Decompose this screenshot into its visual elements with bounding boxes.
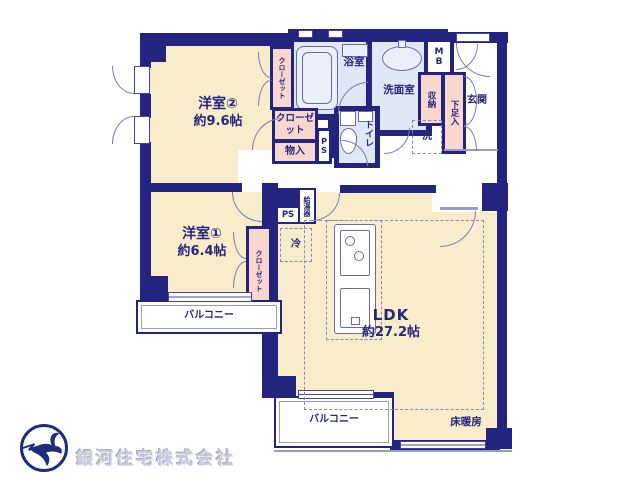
meter-box-label: MB: [434, 47, 444, 67]
room-ldk-name: LDK: [338, 306, 444, 325]
room-ldk-label: LDK 約27.2帖: [338, 306, 444, 341]
ldk-door-leaf: [440, 207, 478, 210]
pipe-space-hall: PS: [316, 128, 332, 164]
company-logo: [20, 424, 68, 472]
pipe-space-ldk: PS: [276, 206, 300, 224]
pipe-space-hall-label: PS: [320, 137, 329, 155]
water-heater-label: 給湯器: [302, 196, 312, 217]
bird-logo-icon: [21, 425, 67, 471]
room-ldk-size: 約27.2帖: [338, 325, 444, 341]
room-western2-label: 洋室② 約9.6帖: [158, 96, 278, 130]
wash-basin-tap-icon: [398, 40, 406, 48]
room-western2-name: 洋室②: [158, 96, 278, 114]
bathroom-label: 浴室: [338, 56, 370, 69]
window-western2-lower: [134, 116, 150, 144]
toilet-tank-icon: [340, 111, 356, 126]
stove-burner-1: [345, 236, 355, 246]
closet-western2-label: クローゼット: [277, 57, 287, 99]
floor-heating-label: 床暖房: [444, 416, 488, 429]
shoe-cabinet-label: 下足入: [448, 100, 460, 126]
wall-between-western-rooms: [143, 183, 242, 192]
room-western1-label: 洋室① 約6.4帖: [150, 226, 254, 260]
stove-burner-2: [354, 251, 364, 261]
window-bath-vent-1: [298, 30, 313, 38]
window-western2-upper-swing-arc: [112, 66, 134, 94]
wash-basin-icon: [382, 46, 422, 71]
wall-left-1: [140, 44, 151, 68]
room-western1-size: 約6.4帖: [150, 244, 254, 260]
closet-western1-label: クローゼット: [254, 250, 264, 292]
ground-line: [274, 450, 512, 452]
wall-right: [497, 43, 507, 433]
fridge-label: 冷: [291, 239, 301, 252]
room-western1-name: 洋室①: [150, 226, 254, 244]
window-bath-vent-2: [328, 30, 343, 38]
company-name: 銀河住宅株式会社: [76, 444, 236, 469]
washer-space: 洗: [412, 120, 442, 154]
bathtub-inner-icon: [302, 52, 332, 104]
meter-box: MB: [424, 38, 454, 76]
window-western2-lower-swing-arc: [112, 116, 134, 144]
water-heater-wall-block: [276, 188, 300, 208]
window-western2-upper: [134, 66, 150, 94]
window-western1-balcony: [168, 292, 252, 302]
balcony-west-label: バルコニー: [156, 310, 262, 323]
shoe-cabinet-box: 下足入: [442, 72, 466, 154]
window-ldk-south: [400, 441, 486, 449]
cabinet-label: 収納: [425, 91, 437, 108]
cabinet-box: 収納: [418, 72, 444, 126]
toilet-label: トイレ: [362, 120, 375, 147]
wall-step-ldk: [266, 376, 296, 398]
wall-left-2: [140, 94, 151, 118]
wall-hall-ldk: [340, 185, 436, 193]
floor-plan: クローゼット クローゼット 物入 PS MB 収納 下足入 洗 PS 給湯器 冷…: [0, 0, 640, 480]
balcony-south-label: バルコニー: [284, 414, 384, 427]
washer-label: 洗: [422, 131, 432, 144]
entrance-label: 玄関: [460, 95, 494, 108]
entrance-door-gap: [456, 33, 490, 42]
stove-icon: [340, 230, 370, 276]
storage-label: 物入: [285, 146, 305, 159]
washroom-label: 洗面室: [376, 84, 422, 97]
room-western2-size: 約9.6帖: [158, 114, 278, 130]
pipe-space-ldk-label: PS: [282, 210, 294, 221]
